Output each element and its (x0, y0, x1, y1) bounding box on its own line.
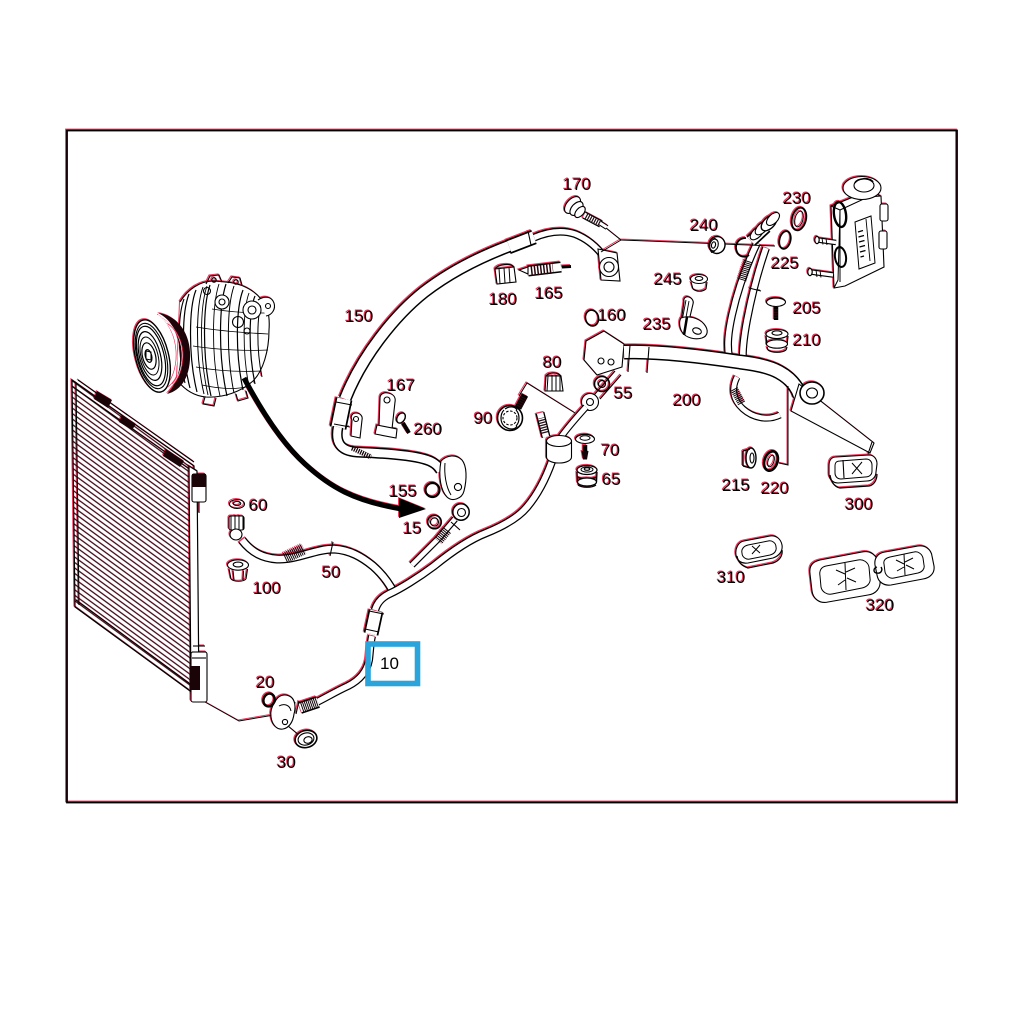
svg-text:215: 215 (722, 476, 750, 495)
svg-text:210: 210 (793, 331, 821, 350)
svg-text:50: 50 (322, 563, 341, 582)
svg-text:230: 230 (783, 189, 811, 208)
svg-text:245: 245 (654, 270, 682, 289)
svg-text:90: 90 (474, 409, 493, 428)
svg-text:310: 310 (717, 568, 745, 587)
svg-text:30: 30 (277, 753, 296, 772)
svg-text:150: 150 (345, 307, 373, 326)
svg-text:300: 300 (845, 495, 873, 514)
svg-text:167: 167 (387, 376, 415, 395)
svg-text:20: 20 (256, 673, 275, 692)
svg-text:205: 205 (793, 299, 821, 318)
svg-text:10: 10 (380, 654, 399, 673)
svg-text:155: 155 (389, 482, 417, 501)
svg-text:15: 15 (403, 519, 422, 538)
svg-text:235: 235 (643, 315, 671, 334)
svg-text:180: 180 (489, 290, 517, 309)
svg-text:200: 200 (673, 391, 701, 410)
svg-text:160: 160 (598, 306, 626, 325)
svg-text:320: 320 (866, 596, 894, 615)
svg-text:70: 70 (601, 441, 620, 460)
svg-text:170: 170 (563, 175, 591, 194)
svg-text:240: 240 (690, 216, 718, 235)
svg-text:60: 60 (249, 496, 268, 515)
svg-text:220: 220 (761, 479, 789, 498)
svg-text:80: 80 (543, 353, 562, 372)
svg-text:165: 165 (535, 284, 563, 303)
svg-text:55: 55 (614, 384, 633, 403)
svg-text:225: 225 (771, 254, 799, 273)
svg-text:65: 65 (602, 470, 621, 489)
svg-text:260: 260 (414, 420, 442, 439)
svg-text:100: 100 (253, 579, 281, 598)
